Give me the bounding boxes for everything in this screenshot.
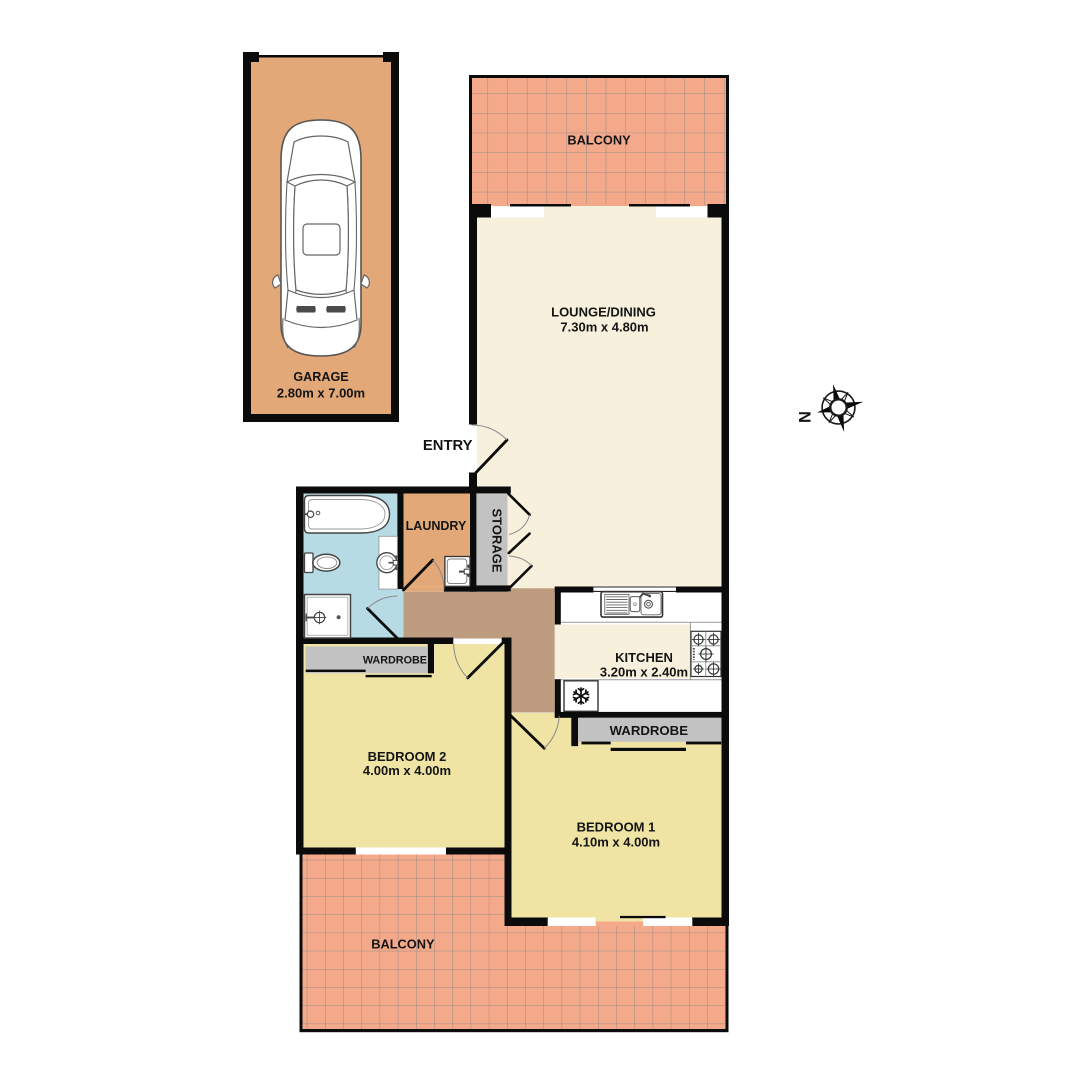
svg-text:BEDROOM 1: BEDROOM 1 — [577, 820, 656, 835]
svg-text:GARAGE: GARAGE — [293, 370, 348, 384]
svg-text:7.30m x 4.80m: 7.30m x 4.80m — [560, 319, 648, 334]
svg-text:BALCONY: BALCONY — [371, 936, 435, 951]
svg-text:STORAGE: STORAGE — [490, 508, 505, 572]
svg-text:N: N — [797, 411, 815, 423]
svg-text:LAUNDRY: LAUNDRY — [406, 519, 467, 533]
svg-text:BEDROOM 2: BEDROOM 2 — [368, 749, 447, 764]
svg-text:3.20m x 2.40m: 3.20m x 2.40m — [600, 665, 688, 680]
svg-text:4.10m x 4.00m: 4.10m x 4.00m — [572, 835, 660, 850]
svg-text:LOUNGE/DINING: LOUNGE/DINING — [551, 305, 656, 320]
svg-text:WARDROBE: WARDROBE — [363, 654, 427, 666]
svg-text:4.00m x 4.00m: 4.00m x 4.00m — [363, 763, 451, 778]
svg-text:BALCONY: BALCONY — [567, 133, 631, 148]
svg-text:WARDROBE: WARDROBE — [610, 723, 689, 738]
svg-text:ENTRY: ENTRY — [423, 438, 473, 454]
svg-text:KITCHEN: KITCHEN — [615, 650, 673, 665]
svg-text:2.80m x 7.00m: 2.80m x 7.00m — [277, 385, 365, 400]
